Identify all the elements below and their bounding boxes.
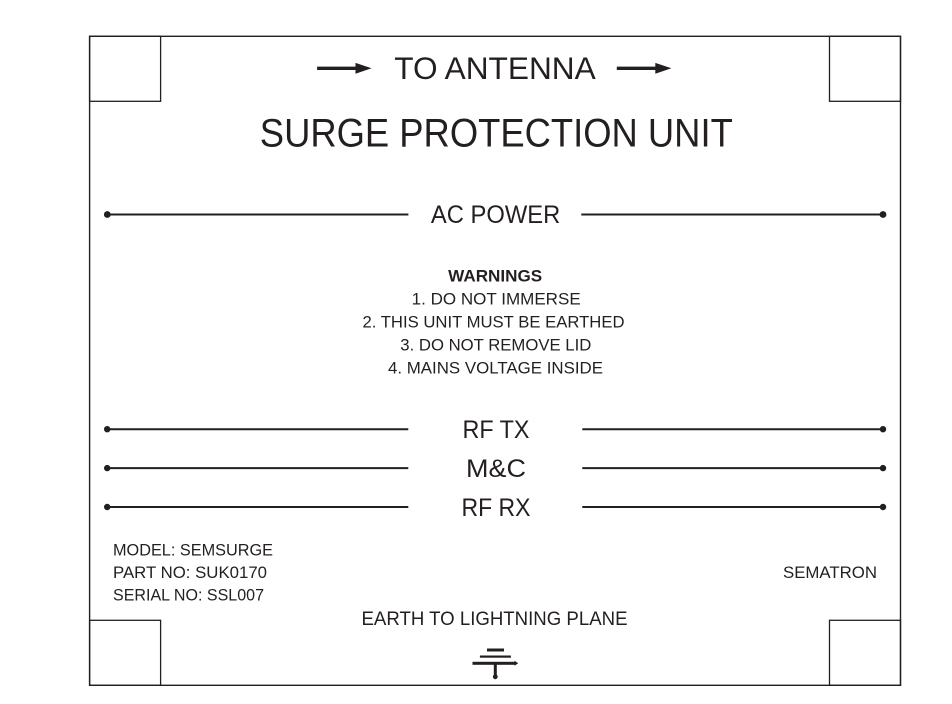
svg-text:SEMATRON: SEMATRON [783,563,877,582]
svg-text:WARNINGS: WARNINGS [448,266,542,285]
svg-text:1. DO NOT IMMERSE: 1. DO NOT IMMERSE [412,289,581,308]
svg-text:RF TX: RF TX [463,416,530,444]
svg-text:SURGE PROTECTION UNIT: SURGE PROTECTION UNIT [260,111,733,155]
svg-text:2. THIS UNIT MUST BE EARTHED: 2. THIS UNIT MUST BE EARTHED [363,313,625,332]
svg-text:AC POWER: AC POWER [431,201,560,229]
svg-text:PART NO: SUK0170: PART NO: SUK0170 [113,564,267,582]
svg-text:3. DO NOT REMOVE LID: 3. DO NOT REMOVE LID [400,336,591,355]
svg-text:TO ANTENNA: TO ANTENNA [394,50,596,86]
svg-text:4. MAINS VOLTAGE INSIDE: 4. MAINS VOLTAGE INSIDE [388,359,603,378]
svg-text:SERIAL NO: SSL007: SERIAL NO: SSL007 [113,586,264,604]
svg-text:M&C: M&C [466,455,526,483]
svg-text:RF RX: RF RX [462,494,531,522]
svg-text:MODEL: SEMSURGE: MODEL: SEMSURGE [113,542,273,560]
svg-text:EARTH TO LIGHTNING PLANE: EARTH TO LIGHTNING PLANE [362,608,628,630]
